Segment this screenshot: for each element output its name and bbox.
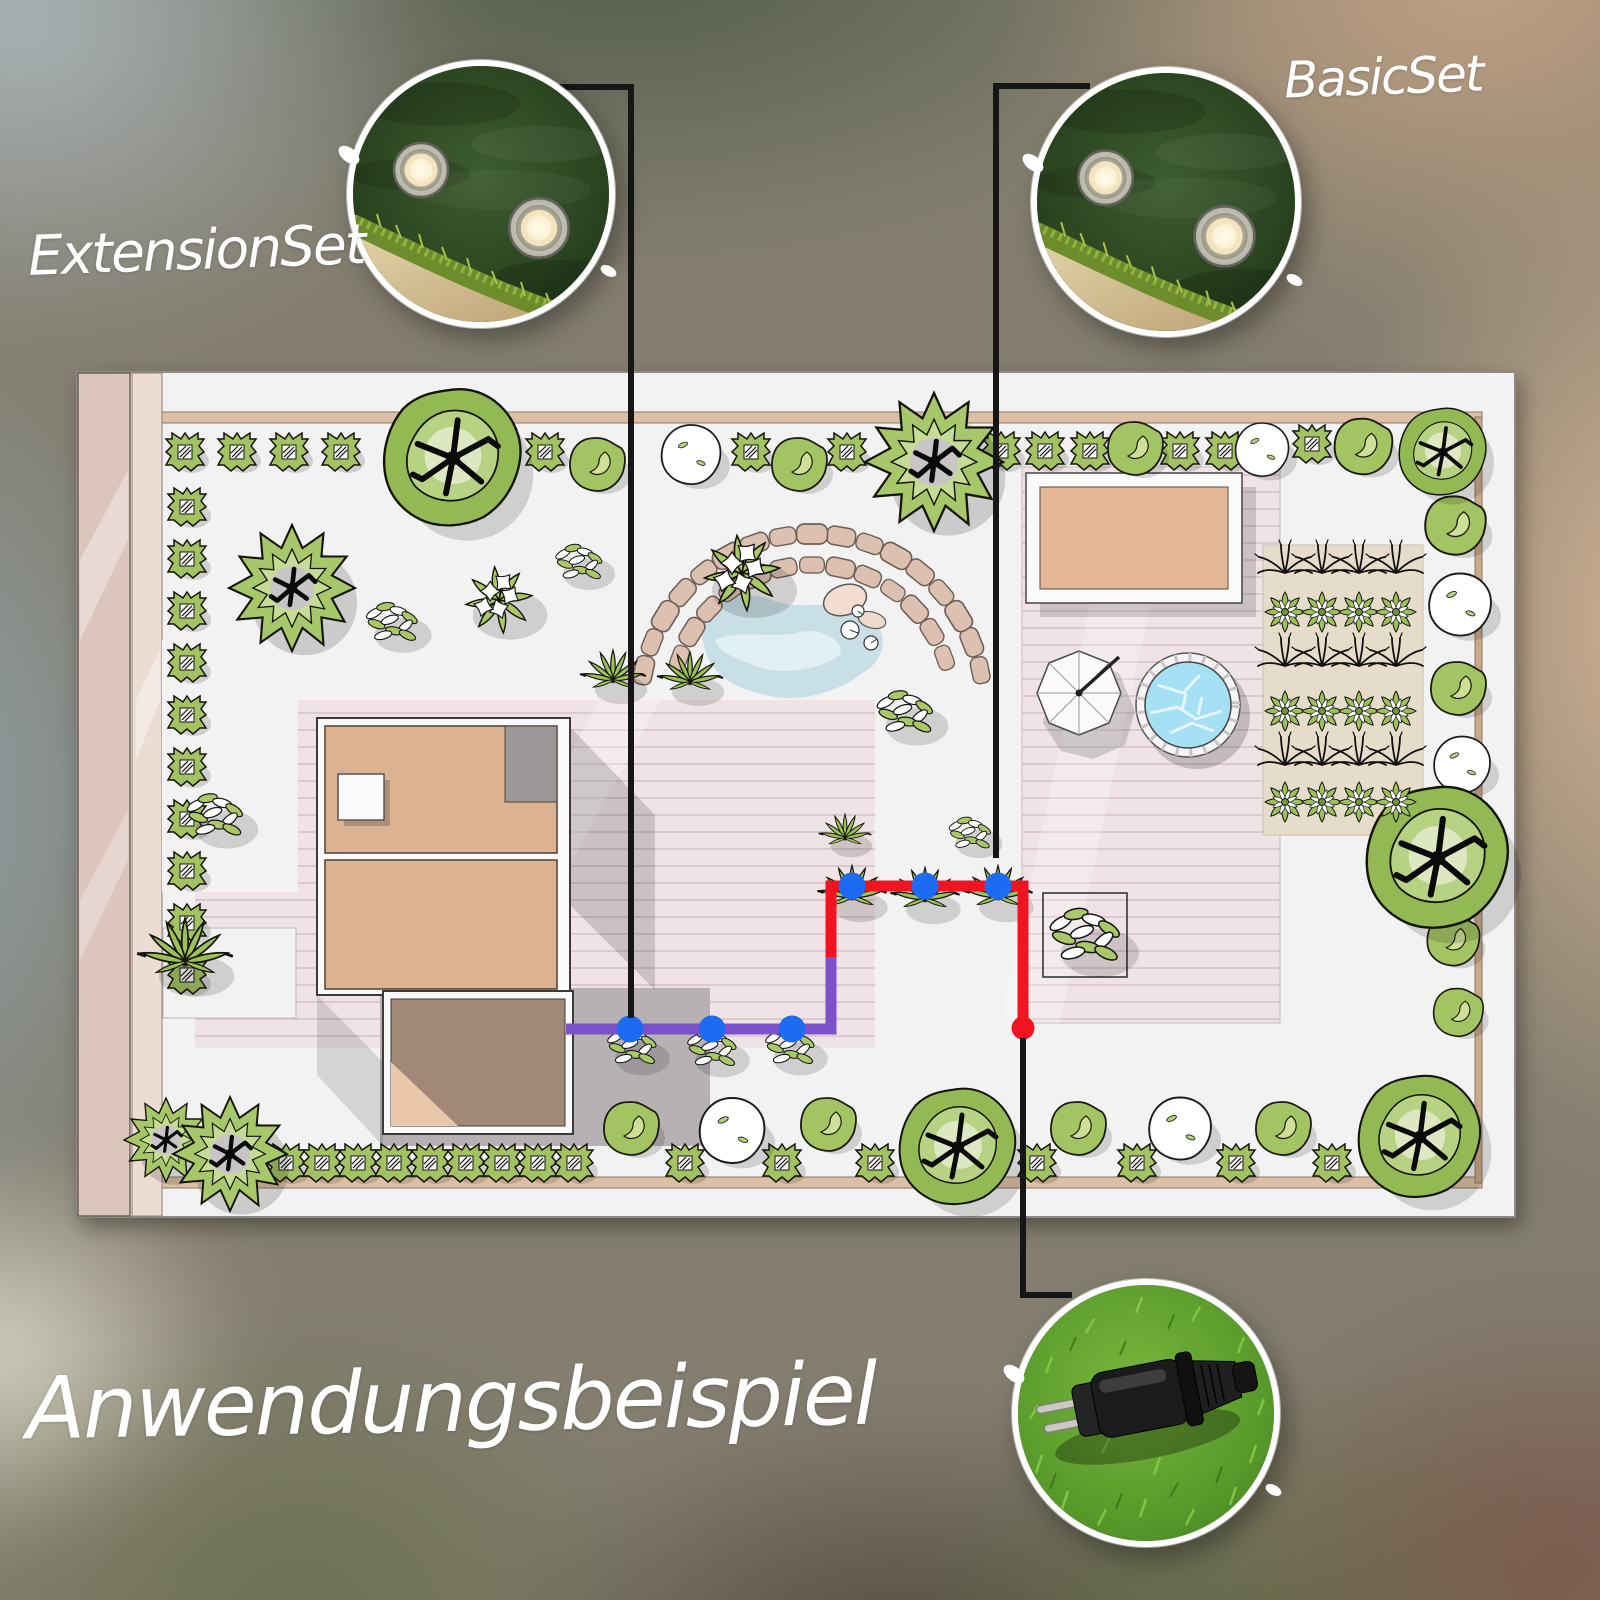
extensionset-photo-inset: [347, 60, 615, 328]
bed-plant-flower: [1339, 691, 1379, 731]
plug-photo-inset: [1012, 1279, 1280, 1547]
house-table: [338, 774, 384, 820]
left-wall: [78, 373, 162, 1216]
extensionset-label: ExtensionSet: [27, 212, 365, 288]
basicset-photo-inset: [1031, 67, 1301, 337]
paving-stone: [796, 524, 827, 544]
bed-plant-flower: [1265, 592, 1305, 632]
extension-light-marker: [699, 1016, 726, 1043]
bed-plant-flower: [1376, 782, 1416, 822]
top-path: [162, 412, 1482, 423]
bed-plant-flower: [1302, 592, 1342, 632]
bed-plant-flower: [1265, 782, 1305, 822]
garage: [383, 991, 573, 1134]
bed-plant-flower: [1339, 592, 1379, 632]
extension-light-marker: [779, 1016, 806, 1043]
house: [317, 718, 570, 995]
seating-area-table: [1026, 473, 1256, 617]
bed-plant-flower: [1376, 691, 1416, 731]
paving-stone: [800, 557, 825, 573]
basic-light-marker: [912, 873, 939, 900]
bed-plant-flower: [1302, 782, 1342, 822]
bed-plant-flower: [1302, 691, 1342, 731]
basic-light-marker: [985, 873, 1012, 900]
bed-plant-flower: [1265, 691, 1305, 731]
house-roof-notch: [505, 726, 557, 802]
basicset-label: BasicSet: [1283, 45, 1483, 110]
connector-marker: [1012, 1017, 1035, 1040]
bed-plant-flower: [1339, 782, 1379, 822]
basic-light-marker: [839, 873, 866, 900]
caption-label: Anwendungsbeispiel: [25, 1345, 876, 1460]
house-room-lower: [325, 860, 557, 989]
bed-plant-flower: [1376, 592, 1416, 632]
extension-light-marker: [617, 1016, 644, 1043]
